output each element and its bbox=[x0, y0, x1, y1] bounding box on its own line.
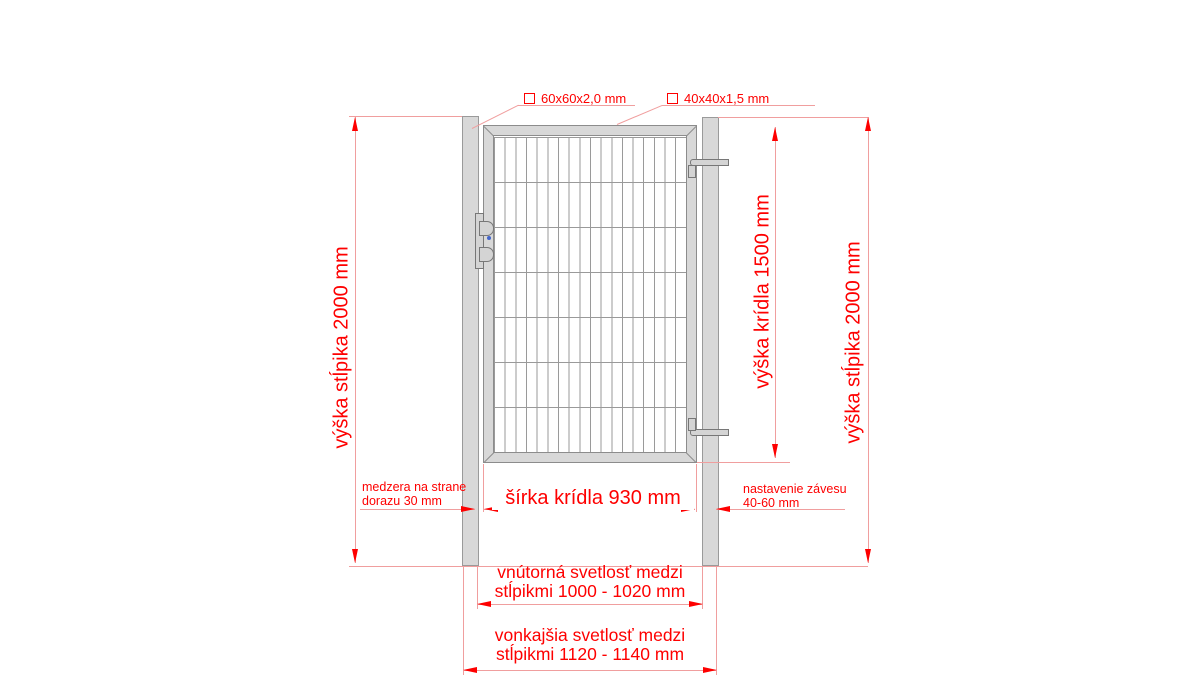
lock-latch-lower bbox=[479, 247, 494, 262]
leaf-width-ext-right bbox=[696, 464, 697, 512]
outer-clearance-label-line2: stĺpikmi 1120 - 1140 mm bbox=[440, 645, 740, 664]
frame-profile-underline bbox=[662, 105, 815, 106]
leaf-height-arrow-down bbox=[772, 444, 778, 458]
outer-clearance-label-line1: vonkajšia svetlosť medzi bbox=[440, 626, 740, 645]
right-dim-arrow-down bbox=[865, 549, 871, 563]
left-dim-line bbox=[355, 117, 356, 563]
inner-clearance-label-line2: stĺpikmi 1000 - 1020 mm bbox=[440, 582, 740, 601]
leaf-height-label: výška krídla 1500 mm bbox=[752, 142, 775, 442]
left-post-height-label: výška stĺpika 2000 mm bbox=[331, 198, 354, 498]
leaf-height-arrow-up bbox=[772, 127, 778, 141]
latch-gap-label-line2: dorazu 30 mm bbox=[362, 495, 442, 509]
inner-clearance-arrow-left bbox=[477, 601, 491, 607]
leaf-width-label: šírka krídla 930 mm bbox=[492, 487, 694, 510]
lock-cylinder-dot bbox=[487, 236, 491, 240]
latch-gap-dim-line bbox=[360, 509, 475, 510]
left-dim-arrow-down bbox=[352, 549, 358, 563]
leaf-height-ext-bottom bbox=[697, 462, 790, 463]
right-dim-line bbox=[868, 117, 869, 563]
outer-clearance-arrow-right bbox=[703, 667, 717, 673]
left-post bbox=[462, 116, 479, 566]
inner-clearance-arrow-right bbox=[689, 601, 703, 607]
leaf-height-dim-line bbox=[775, 127, 776, 458]
post-profile-underline bbox=[518, 105, 635, 106]
right-post-height-label: výška stĺpika 2000 mm bbox=[843, 193, 866, 493]
leaf-width-ext-left bbox=[483, 464, 484, 512]
bottom-hinge-hook bbox=[688, 418, 696, 431]
latch-gap-arrow bbox=[461, 506, 475, 512]
inner-clearance-label-line1: vnútorná svetlosť medzi bbox=[440, 563, 740, 582]
hinge-adjust-arrow bbox=[716, 506, 730, 512]
hinge-adjust-label-line2: 40-60 mm bbox=[743, 497, 799, 511]
outer-clearance-dim-line bbox=[463, 670, 717, 671]
latch-gap-label-line1: medzera na strane bbox=[362, 481, 466, 495]
top-hinge-hook bbox=[688, 165, 696, 178]
gate-mesh bbox=[494, 137, 686, 452]
inner-clearance-dim-line bbox=[477, 604, 703, 605]
hinge-adjust-label-line1: nastavenie závesu bbox=[743, 483, 847, 497]
left-dim-arrow-up bbox=[352, 117, 358, 131]
frame-profile-label: 40x40x1,5 mm bbox=[684, 91, 769, 106]
post-profile-label: 60x60x2,0 mm bbox=[541, 91, 626, 106]
lock-latch-upper bbox=[479, 221, 494, 236]
frame-profile-leader bbox=[617, 105, 663, 125]
right-dim-ext-top bbox=[718, 117, 868, 118]
left-dim-ext-top bbox=[349, 116, 462, 117]
right-post bbox=[702, 117, 719, 566]
frame-profile-square-icon bbox=[667, 93, 678, 104]
gate-technical-drawing: 60x60x2,0 mm 40x40x1,5 mm výška stĺpika … bbox=[0, 0, 1200, 700]
post-profile-square-icon bbox=[524, 93, 535, 104]
right-dim-arrow-up bbox=[865, 117, 871, 131]
outer-clearance-arrow-left bbox=[463, 667, 477, 673]
